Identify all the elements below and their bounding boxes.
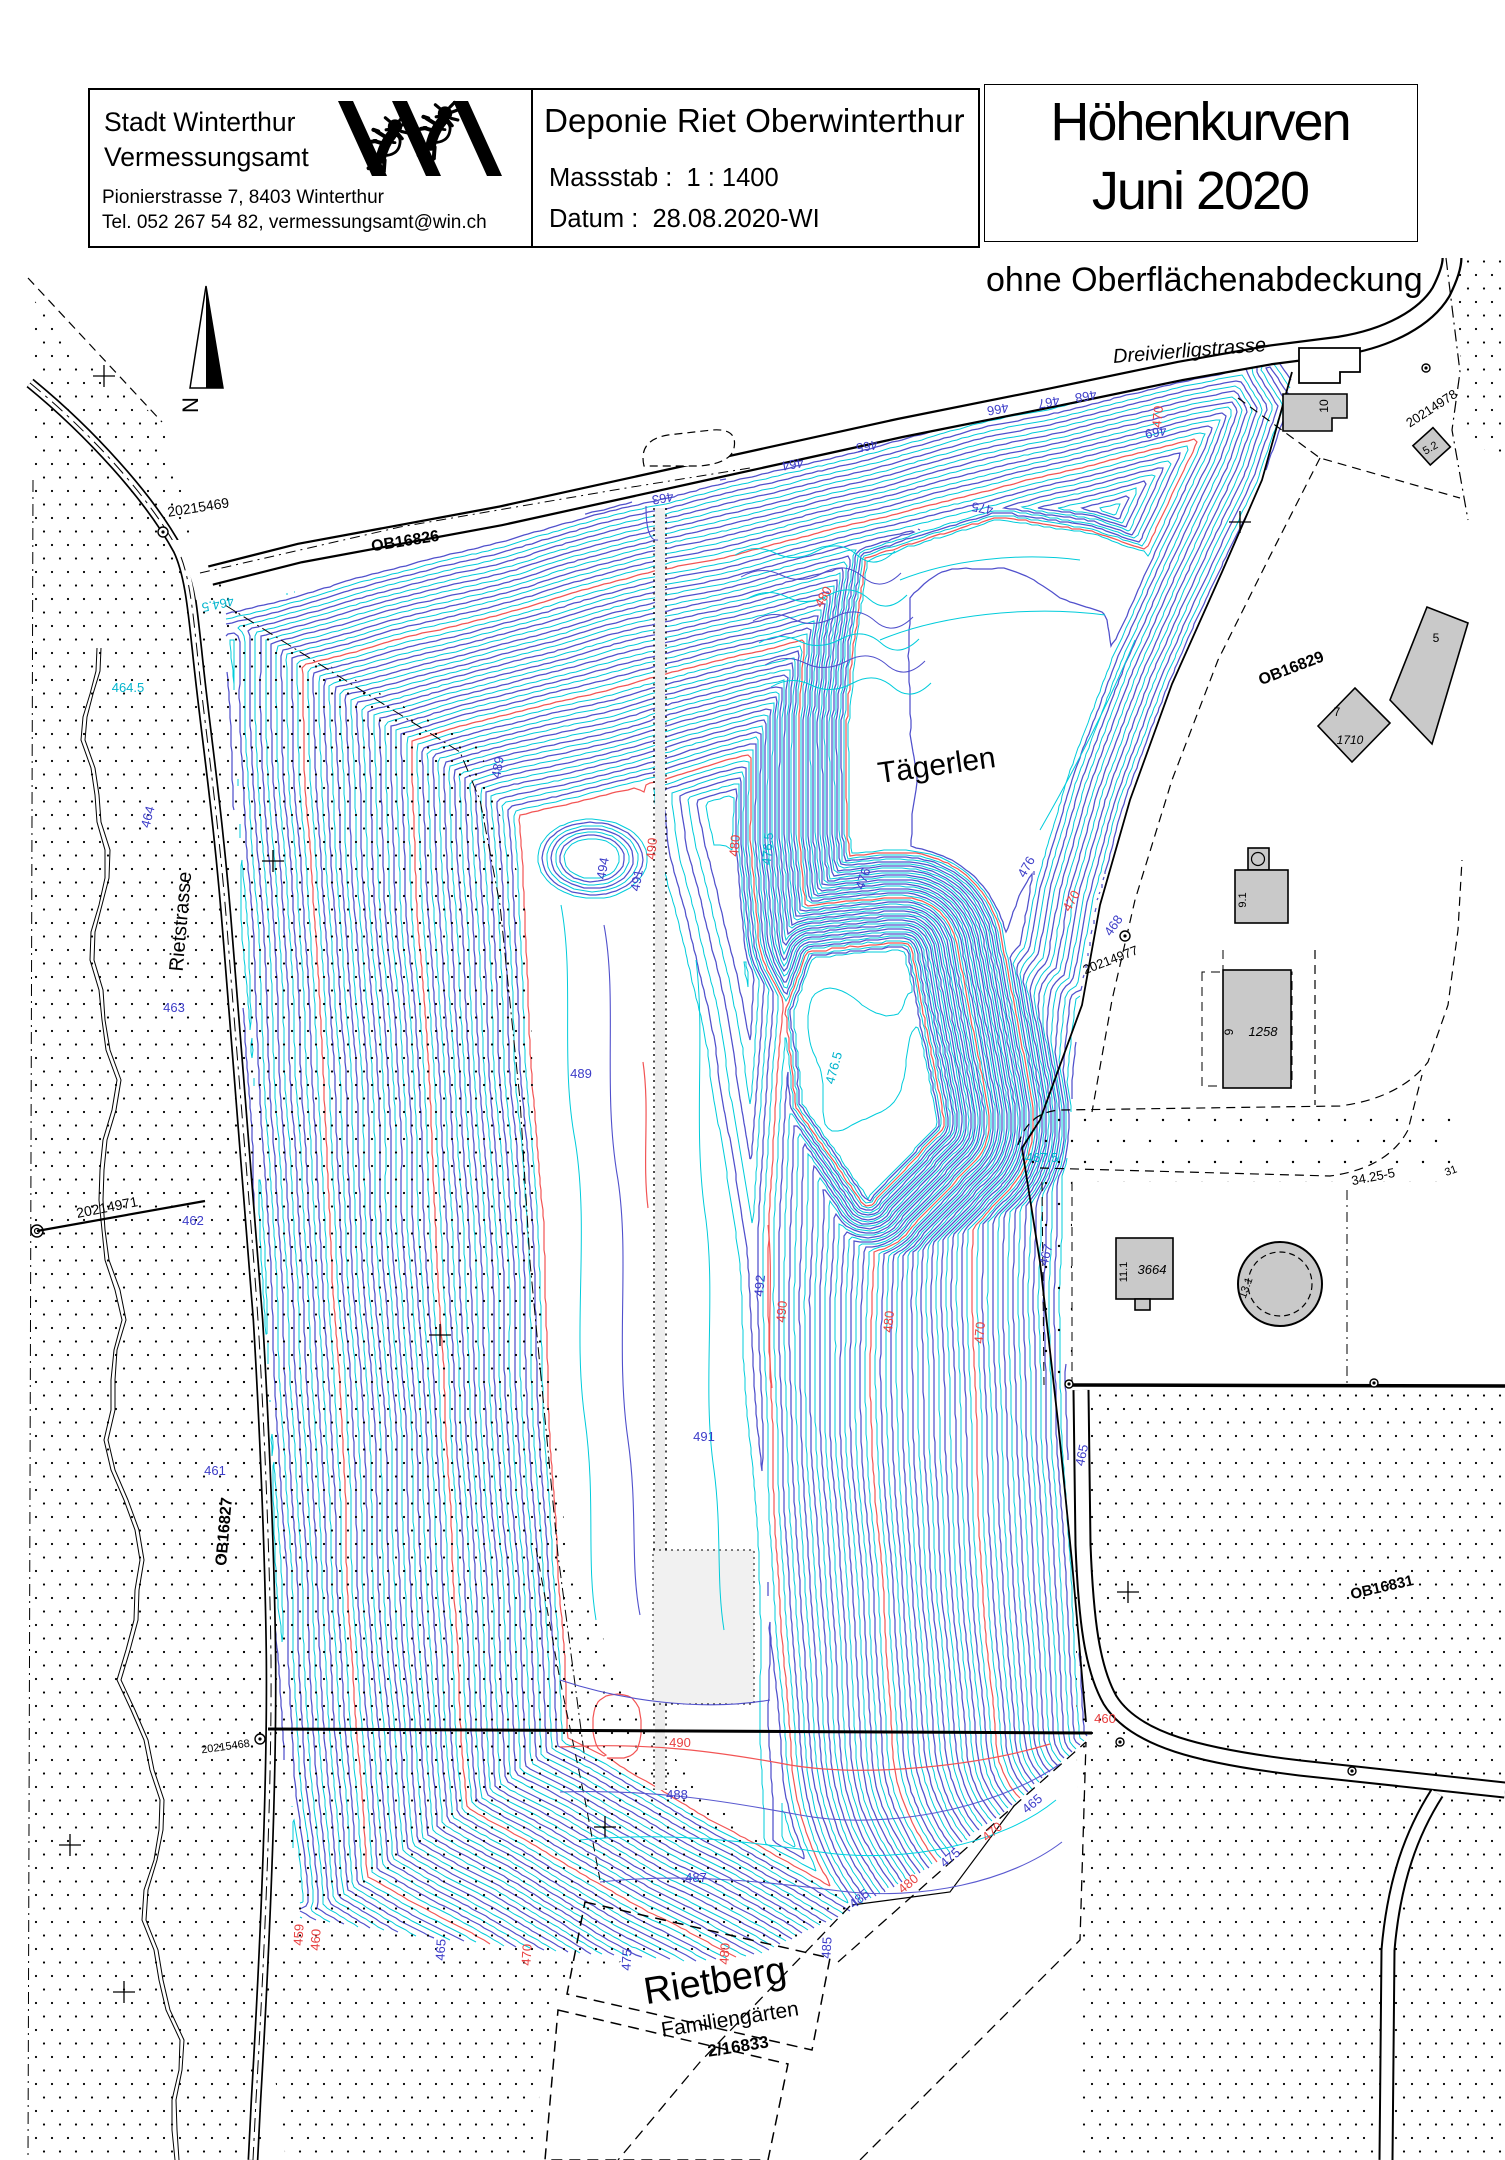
svg-text:480: 480 [726,834,743,857]
svg-text:460: 460 [1094,1711,1116,1726]
svg-text:9: 9 [1222,1028,1236,1035]
svg-text:7: 7 [1334,705,1341,719]
svg-text:2/16833: 2/16833 [706,2032,770,2060]
svg-text:491: 491 [693,1429,715,1444]
svg-text:10: 10 [1317,399,1331,413]
svg-text:465: 465 [432,1939,448,1961]
svg-text:490: 490 [669,1735,691,1750]
svg-text:480: 480 [880,1310,897,1333]
svg-text:485: 485 [846,1886,872,1911]
svg-text:461: 461 [204,1463,226,1478]
svg-text:489: 489 [570,1066,592,1081]
svg-text:5: 5 [1433,631,1440,645]
svg-text:459: 459 [290,1924,306,1946]
svg-text:476.5: 476.5 [822,1050,845,1085]
svg-text:476: 476 [1014,854,1038,880]
svg-text:475: 475 [618,1949,634,1971]
svg-text:463: 463 [163,1000,185,1015]
svg-text:476.5: 476.5 [759,832,777,866]
svg-text:490: 490 [643,837,660,860]
svg-text:N: N [178,397,203,413]
svg-text:11.1: 11.1 [1118,1262,1130,1283]
svg-text:490: 490 [773,1300,790,1323]
svg-text:20214977: 20214977 [1081,942,1140,977]
svg-text:OB16829: OB16829 [1256,649,1326,689]
svg-text:Tägerlen: Tägerlen [876,741,998,790]
svg-text:3664: 3664 [1138,1262,1167,1277]
svg-text:470: 470 [518,1944,534,1966]
svg-text:1710: 1710 [1337,733,1364,747]
svg-text:467.5: 467.5 [1026,1150,1059,1165]
svg-text:464.5: 464.5 [112,680,145,695]
svg-text:465: 465 [1019,1791,1045,1816]
svg-text:488: 488 [666,1787,688,1802]
svg-text:460: 460 [307,1929,323,1951]
svg-text:1258: 1258 [1249,1024,1279,1039]
svg-text:487: 487 [685,1870,707,1885]
svg-text:470: 470 [1149,405,1166,428]
svg-text:20214978: 20214978 [1403,386,1460,430]
svg-text:492: 492 [751,1274,768,1297]
svg-text:9.1: 9.1 [1237,892,1249,907]
svg-text:491: 491 [627,868,646,892]
svg-text:494: 494 [593,856,612,880]
svg-text:462: 462 [182,1213,204,1228]
svg-text:480: 480 [716,1943,732,1965]
svg-text:485: 485 [818,1937,834,1959]
svg-text:475: 475 [970,499,994,518]
svg-text:470: 470 [971,1321,988,1344]
